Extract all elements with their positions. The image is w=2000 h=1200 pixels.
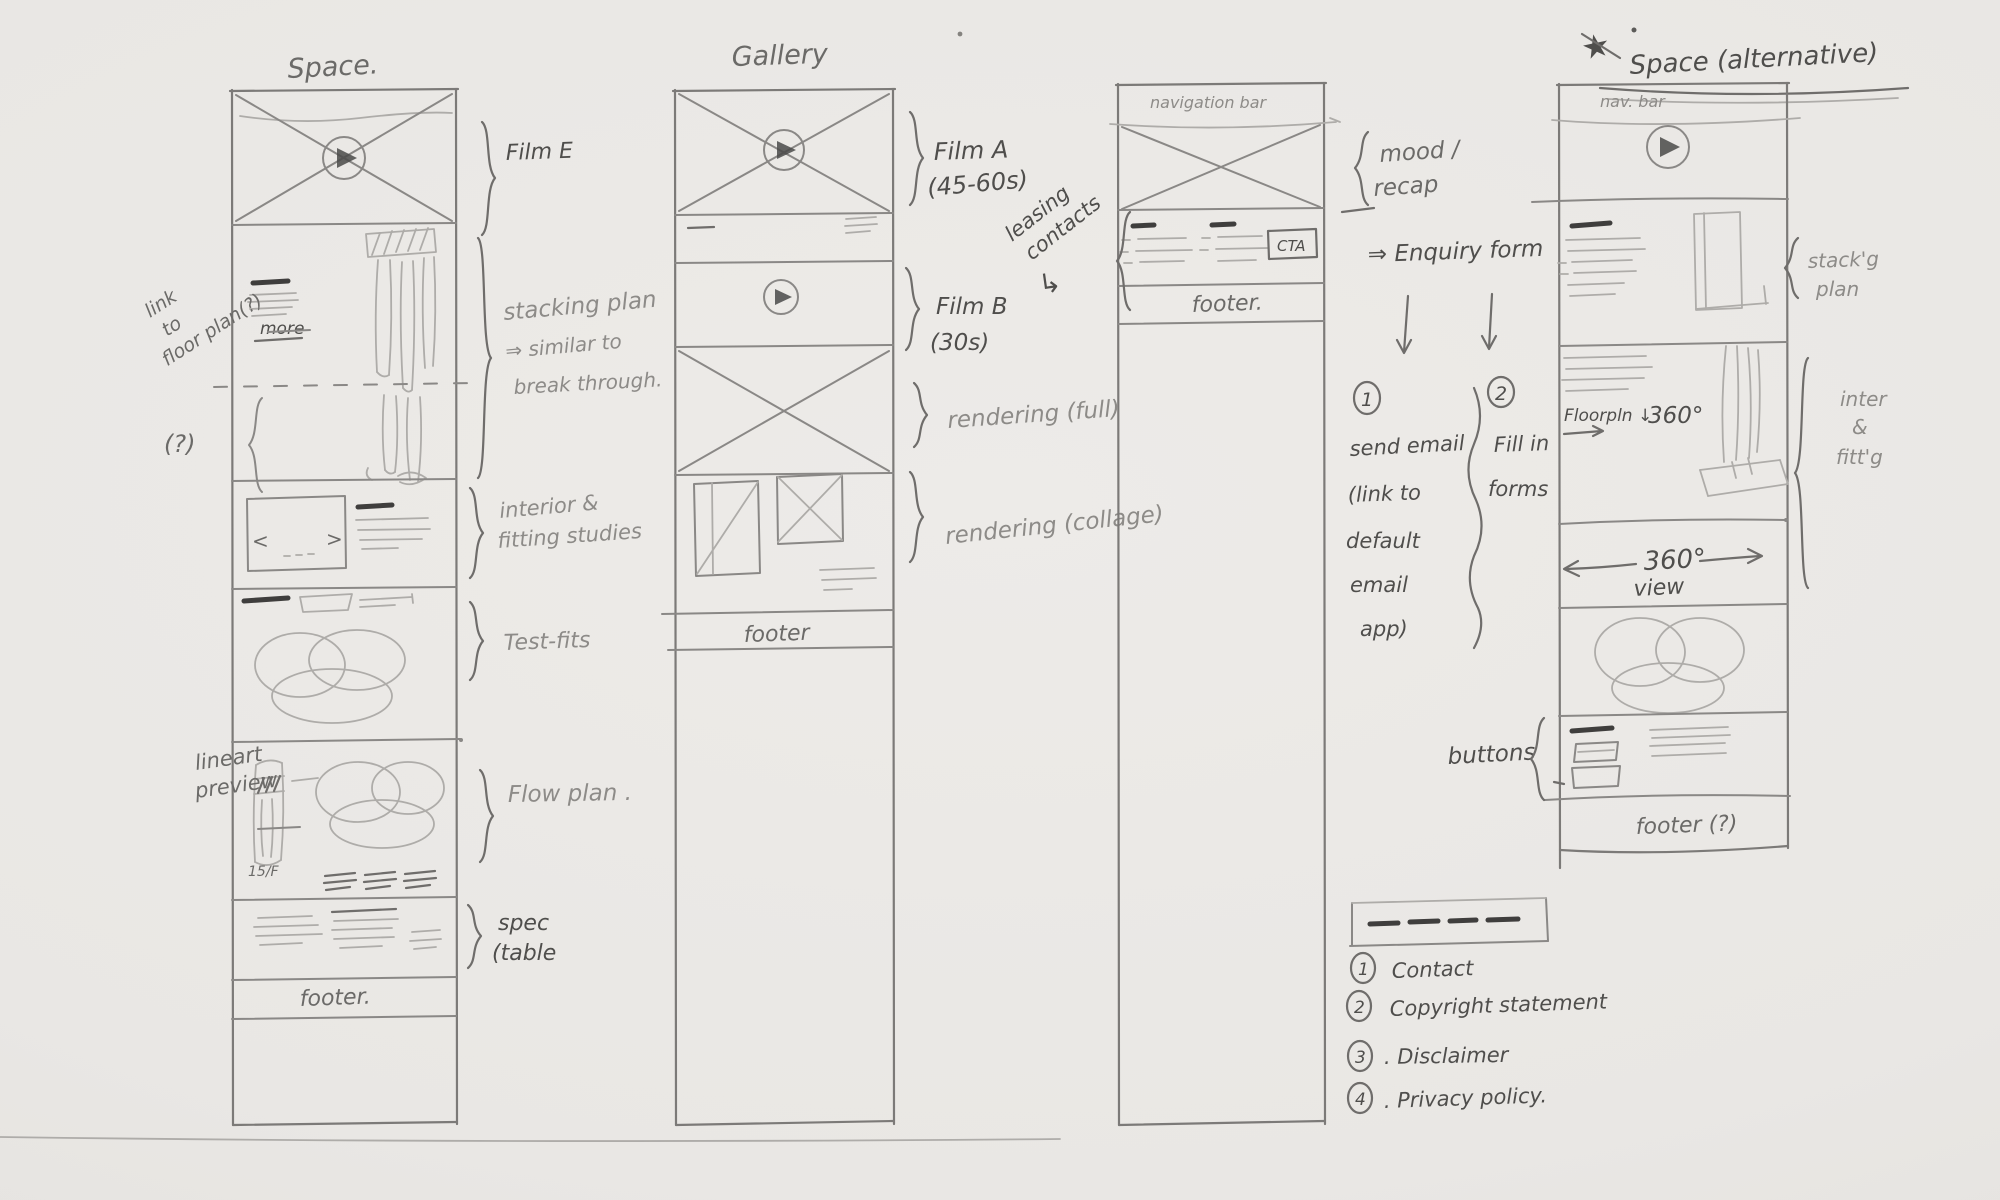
stacking-note-line2: ⇒ similar to — [504, 329, 622, 363]
enquiry-annotations: mood / recap ⇒ Enquiry form 1 send email… — [1342, 132, 1550, 648]
flowplan-cloud-sketch — [316, 762, 444, 848]
space-right-annotations: Film E stacking plan ⇒ similar to break … — [468, 122, 663, 968]
space-alt-annotations: stack'g plan inter & fitt'g buttons — [1447, 238, 1888, 800]
space-page-frame — [230, 89, 458, 1125]
footer-item-1-digit: 1 — [1358, 960, 1369, 980]
gallery-caption-row — [675, 217, 893, 263]
footer-bar-sketch — [1350, 898, 1548, 946]
space-alt-floorplan-section: Floorpln ↓ 360° — [1559, 346, 1788, 524]
flowplan-note: Flow plan . — [508, 780, 633, 808]
unit-text-blocks — [324, 871, 436, 890]
mood-note-line1: mood / — [1379, 136, 1463, 168]
space-interior-section: < > — [232, 496, 456, 589]
interior-brace — [470, 488, 483, 578]
film-b-note-line1: Film B — [936, 294, 1008, 320]
more-link: more — [260, 319, 304, 339]
space-alt-footer-label: footer (?) — [1635, 811, 1738, 840]
contact-hero-placeholder — [1118, 125, 1324, 210]
carousel-prev-icon: < — [252, 529, 269, 553]
option-1-line2: (link to — [1347, 480, 1421, 507]
option-1-line5: app) — [1360, 617, 1408, 641]
space-testfits-section — [232, 594, 463, 742]
question-note: (?) — [164, 430, 195, 458]
spec-note-line2: (table — [492, 941, 556, 966]
gallery-page-frame — [673, 89, 895, 1125]
film-a-note-line1: Film A — [933, 135, 1009, 166]
option-1-line1: send email — [1349, 431, 1465, 461]
carousel-next-icon: > — [326, 527, 343, 551]
option-2-digit: 2 — [1495, 383, 1507, 405]
arrow-right-icon — [1700, 549, 1762, 563]
paper-marks — [0, 32, 1060, 1141]
space-column: Space. more — [131, 49, 663, 1125]
space-column-title: Space. — [287, 49, 379, 85]
leasing-arrow-icon: ↳ — [1037, 267, 1064, 301]
film-e-brace — [482, 122, 495, 235]
down-arrow-2 — [1482, 294, 1496, 349]
arrow-left-icon — [1564, 561, 1636, 576]
rendering-full-note: rendering (full) — [947, 396, 1121, 434]
paper-sketch: Space. more — [0, 0, 2000, 1200]
gallery-footer: footer — [662, 610, 893, 650]
contact-column: navigation bar CTA footer. — [1000, 83, 1608, 1125]
inter-note-line3: fitt'g — [1836, 445, 1883, 469]
interior-note-line2: fitting studies — [497, 519, 643, 553]
space-hero-video-placeholder — [232, 94, 456, 225]
cta-label: CTA — [1277, 237, 1306, 255]
space-stacking-section: more — [214, 228, 472, 484]
gallery-hero-video-placeholder — [675, 94, 893, 215]
wireframe-sketch-svg: Space. more — [0, 0, 2000, 1200]
floorplan-arrow — [1564, 426, 1603, 436]
footer-items-notes: 1 Contact 2 Copyright statement 3 . Disc… — [1347, 953, 1608, 1113]
option-1-line3: default — [1346, 529, 1421, 553]
footer-item-2-digit: 2 — [1354, 998, 1365, 1018]
navbar-label: nav. bar — [1600, 92, 1666, 111]
space-footer-label: footer. — [299, 985, 371, 1012]
space-alt-logo-section — [1532, 126, 1788, 202]
space-alt-360-section: 360° view — [1559, 544, 1787, 608]
space-alt-map-section — [1559, 618, 1787, 716]
stacking-note-line3: break through. — [513, 367, 663, 399]
navbar-label: navigation bar — [1150, 93, 1268, 112]
contact-footer-label: footer. — [1191, 291, 1263, 318]
floorplan-label: Floorpln ↓ — [1564, 406, 1652, 426]
space-spec-section: footer. — [232, 909, 456, 1019]
footer-item-1: Contact — [1391, 956, 1474, 983]
storey-plan-sketch — [1694, 212, 1768, 310]
deg360-label: 360° — [1643, 544, 1707, 577]
dashed-divider — [214, 383, 472, 387]
footer-item-3-digit: 3 — [1355, 1048, 1366, 1068]
spec-note-line1: spec — [498, 911, 549, 936]
storey-note-line2: plan — [1815, 277, 1859, 301]
stacking-tower-sketch — [366, 228, 436, 484]
gallery-film-b-placeholder — [675, 280, 893, 347]
option-2-line1: Fill in — [1493, 431, 1549, 457]
gallery-column-title: Gallery — [731, 39, 829, 73]
stacking-note-line1: stacking plan — [502, 287, 657, 326]
gallery-rendering-full-placeholder — [675, 351, 893, 475]
column-figure-sketch — [1700, 346, 1788, 496]
floorplan-360-label: 360° — [1648, 403, 1703, 429]
rendering-collage-note: rendering (collage) — [944, 501, 1165, 550]
stacking-brace — [478, 238, 491, 478]
option-1-note: 1 send email (link to default email app) — [1346, 382, 1482, 648]
space-alt-navbar: nav. bar — [1552, 92, 1800, 124]
storey-note-line1: stack'g — [1807, 247, 1879, 273]
enquiry-note: ⇒ Enquiry form — [1367, 236, 1543, 268]
contact-navbar: navigation bar — [1110, 93, 1340, 128]
question-brace — [249, 398, 262, 492]
space-alt-storey-section — [1558, 212, 1787, 346]
film-b-note-line2: (30s) — [930, 330, 989, 356]
inter-note-line2: & — [1852, 415, 1868, 439]
rendering-collage-brace — [910, 472, 923, 562]
film-e-note: Film E — [505, 139, 573, 166]
footer-item-4: . Privacy policy. — [1383, 1083, 1547, 1113]
gallery-footer-label: footer — [743, 621, 812, 648]
option-2-line2: forms — [1488, 477, 1548, 501]
map-cloud-sketch — [1595, 618, 1744, 713]
option-1-digit: 1 — [1361, 389, 1373, 411]
down-arrow-1 — [1397, 296, 1411, 353]
gallery-rendering-collage — [694, 474, 876, 590]
testfits-brace — [470, 602, 483, 680]
footer-item-4-digit: 4 — [1355, 1090, 1366, 1110]
option-divider-squiggle — [1468, 388, 1481, 648]
contact-footer: footer. — [1118, 291, 1324, 324]
testfits-cloud-sketch — [255, 630, 405, 723]
rendering-full-brace — [914, 383, 927, 447]
inter-brace — [1795, 358, 1808, 588]
inter-note-line1: inter — [1840, 387, 1888, 411]
leasing-contacts-row: CTA — [1118, 224, 1324, 286]
mood-note-line2: recap — [1373, 172, 1440, 202]
spec-brace — [468, 905, 481, 968]
option-1-line4: email — [1350, 573, 1408, 597]
footer-item-2: Copyright statement — [1389, 989, 1608, 1021]
flowplan-brace — [480, 770, 493, 862]
film-b-brace — [906, 268, 919, 350]
star-icon: ★ — [1578, 25, 1614, 68]
space-alt-title-text: Space (alternative) — [1629, 38, 1879, 81]
floor-label: 15/F — [248, 864, 280, 880]
film-a-note-line2: (45-60s) — [926, 165, 1029, 202]
interior-note-line1: interior & — [498, 490, 599, 523]
mood-brace — [1355, 132, 1368, 205]
footer-item-3: . Disclaimer — [1384, 1043, 1510, 1069]
film-a-brace — [910, 112, 923, 205]
space-alt-buttons-section: footer (?) — [1545, 727, 1790, 840]
option-2-note: 2 Fill in forms — [1488, 377, 1550, 501]
gallery-annotations: Film A (45-60s) Film B (30s) rendering (… — [906, 112, 1165, 562]
view-label: view — [1633, 574, 1686, 602]
testfits-note: Test-fits — [503, 628, 590, 656]
buttons-note: buttons — [1447, 739, 1536, 770]
